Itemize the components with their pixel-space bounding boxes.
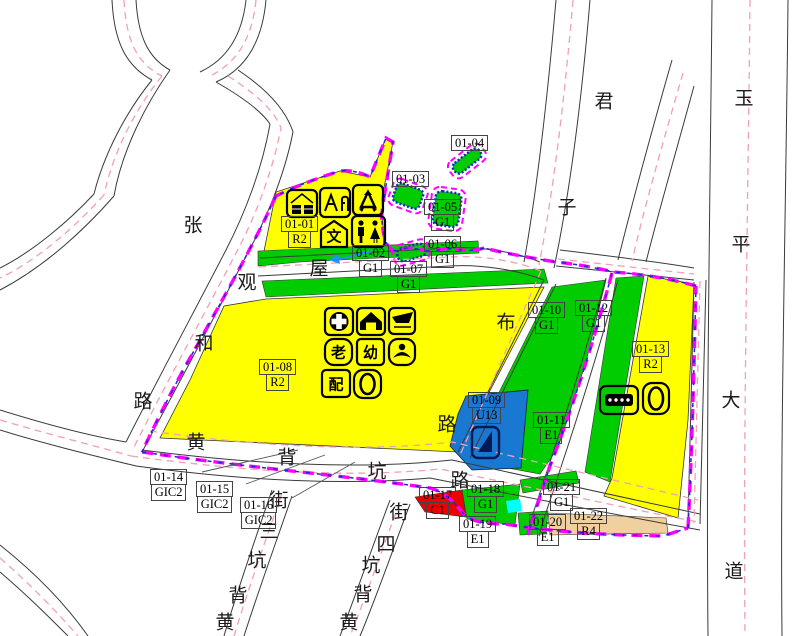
parcel-label: 01-21 G1 [543,479,580,511]
parcel-code: G1 [397,276,420,292]
parcel-label: 01-13 R2 [632,341,669,373]
parcel-label: 01-10 G1 [528,302,565,334]
parcel-id: 01-04 [451,135,488,151]
parcel-id: 01-14 [150,469,187,485]
parcel-label: 01-12 G1 [575,300,612,332]
road-name-char: 观 [237,268,256,295]
parcel-id: 01-13 [632,341,669,357]
road-name-char: 玉 [734,84,753,111]
parcel-id: 01-15 [196,481,233,497]
road-name-char: 和 [194,329,213,356]
parcel-label: 01-15 GIC2 [196,481,233,513]
road-name-char: 屋 [309,254,328,281]
parcel-label: 01-02 G1 [352,245,389,277]
culture-room-icon-label: 文 [326,226,341,247]
parcel-code: GIC2 [151,484,187,500]
parcel-code: E1 [540,427,562,443]
parcel-id: 01-16 [240,497,277,513]
parcel-id: 01-12 [575,300,612,316]
parcel-label: 01-17 C1 [419,487,456,519]
parcel-code: G1 [431,251,454,267]
parcel-label: 01-19 E1 [459,516,496,548]
road-name-char: 黄 [215,608,234,635]
road-name-char: 路 [133,387,152,414]
parcel-id: 01-02 [352,245,389,261]
parcel-code: G1 [359,260,382,276]
parcel-label: 01-03 [392,171,429,187]
parcel-id: 01-11 [533,412,570,428]
parcel-label: 01-20 E1 [529,514,566,546]
parcel-code: R4 [577,523,600,539]
road-name-char: 街 [389,498,408,525]
parcel-label: 01-08 R2 [259,359,296,391]
parcel-code: G1 [474,496,497,512]
road-name-char: 坑 [361,551,380,578]
road-name-char: 路 [437,410,456,437]
road-name-char: 坑 [367,457,386,484]
parcel-label: 01-05 G1 [424,199,461,231]
parcel-code: GIC2 [241,512,277,528]
parcel-code: C1 [426,502,449,518]
parcel-code: U13 [472,407,502,423]
parcel-label: 01-22 R4 [570,508,607,540]
road-name-char: 背 [353,580,372,607]
parcel-id: 01-17 [419,487,456,503]
parcel-label: 01-14 GIC2 [150,469,187,501]
parcel-code: E1 [537,529,559,545]
parcel-id: 01-07 [390,261,427,277]
parcel-label: 01-07 G1 [390,261,427,293]
road-name-char: 黄 [186,428,205,455]
road-name-char: 背 [228,581,247,608]
map-canvas [0,0,800,636]
road-name-char: 黄 [339,608,358,635]
road-name-char: 子 [557,193,576,220]
parcel-label: 01-16 GIC2 [240,497,277,529]
road-name-char: 道 [724,557,743,584]
parcel-label: 01-11 E1 [533,412,570,444]
substation-icon-label: 配 [328,373,343,394]
kindergarten-icon-label: 幼 [363,342,378,363]
parcel-id: 01-05 [424,199,461,215]
parcel-code: G1 [582,315,605,331]
road-name-char: 背 [277,443,296,470]
parcel-id: 01-09 [468,392,505,408]
parcel-code: G1 [535,317,558,333]
zoning-map: 01-01 R2 01-02 G1 01-03 01-04 01-05 G1 0… [0,0,800,636]
parcel-id: 01-20 [529,514,566,530]
parcel-code: R2 [288,231,311,247]
parcel-id: 01-08 [259,359,296,375]
elderly-care-icon-label: 老 [331,342,346,363]
parcel-id: 01-06 [424,236,461,252]
road-name-char: 布 [496,308,515,335]
parcel-id: 01-10 [528,302,565,318]
parcel-id: 01-01 [281,216,318,232]
parcel-code: R2 [639,356,662,372]
parcel-label: 01-04 [451,135,488,151]
parcel-code: E1 [467,531,489,547]
road-name-char: 平 [731,230,750,257]
parcel-id: 01-22 [570,508,607,524]
water-sliver [506,499,522,513]
parcel-label: 01-01 R2 [281,216,318,248]
parcel-label: 01-09 U13 [468,392,505,424]
parcel-label: 01-06 G1 [424,236,461,268]
road-name-char: 坑 [247,546,266,573]
parcel-code: GIC2 [197,496,233,512]
parcel-code: G1 [431,214,454,230]
parcel-label: 01-18 G1 [467,481,504,513]
parcel-code: R2 [266,374,289,390]
parcel-id: 01-21 [543,479,580,495]
road-name-char: 张 [183,211,202,238]
road-name-char: 大 [721,386,740,413]
road-name-char: 君 [594,87,613,114]
parcel-id: 01-18 [467,481,504,497]
parcel-id: 01-03 [392,171,429,187]
parcel-id: 01-19 [459,516,496,532]
